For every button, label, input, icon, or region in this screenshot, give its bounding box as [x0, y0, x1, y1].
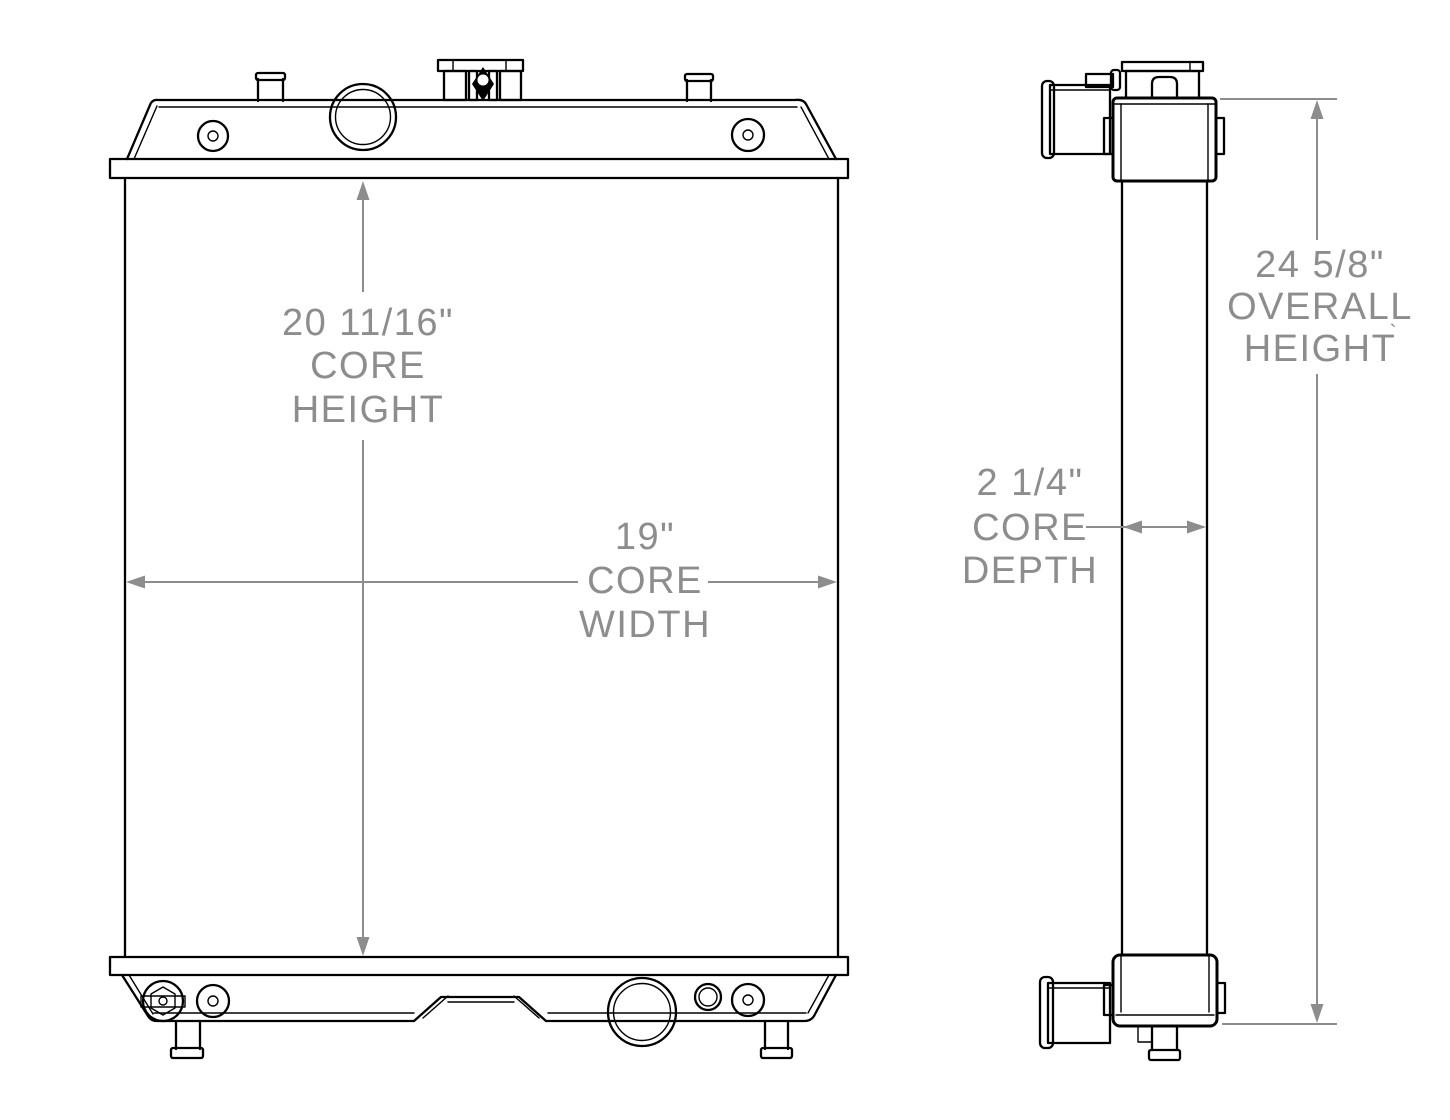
filler-neck	[330, 84, 396, 150]
bottom-tank-side	[1040, 955, 1225, 1060]
radiator-cap-side	[1122, 62, 1203, 98]
bolt-hole-bottom-left	[197, 985, 229, 1017]
overall-height-label-1: OVERALL	[1227, 286, 1413, 328]
core-height-label-2: HEIGHT	[292, 389, 445, 431]
stray-tick-mark: `	[1389, 320, 1396, 345]
mounting-pin-right	[685, 74, 713, 101]
bolt-hole-bottom-right	[732, 984, 764, 1016]
top-tank	[127, 60, 836, 159]
drawing-canvas: 20 11/16" CORE HEIGHT 19" CORE WIDTH 2 1…	[0, 0, 1450, 1120]
drain-petcock	[141, 981, 185, 1021]
core-width-label-2: WIDTH	[579, 604, 711, 646]
mounting-leg-left	[171, 1021, 203, 1058]
bolt-hole-top-right	[732, 119, 764, 151]
core-height-value: 20 11/16"	[282, 302, 454, 344]
radiator-technical-drawing: 20 11/16" CORE HEIGHT 19" CORE WIDTH 2 1…	[0, 0, 1450, 1120]
core-depth-value: 2 1/4"	[976, 462, 1083, 504]
core-side	[1122, 181, 1207, 955]
fitting-ring	[695, 984, 721, 1010]
core-width-dimension: 19" CORE WIDTH	[126, 516, 837, 646]
core-height-dimension: 20 11/16" CORE HEIGHT	[282, 181, 454, 956]
overall-height-label-2: HEIGHT	[1244, 328, 1397, 370]
mounting-pin-left	[256, 73, 285, 101]
core-depth-dimension: 2 1/4" CORE DEPTH	[962, 462, 1206, 592]
overall-height-dimension: 24 5/8" OVERALL HEIGHT `	[1220, 99, 1413, 1024]
inlet-pipe	[1042, 81, 1110, 158]
bolt-hole-top-left	[198, 121, 228, 151]
front-view	[110, 60, 848, 1058]
outlet-pipe-side	[1040, 977, 1110, 1048]
top-tank-side	[1042, 62, 1224, 181]
core-depth-label-2: DEPTH	[962, 550, 1098, 592]
bottom-tank	[122, 975, 836, 1058]
core-height-label-1: CORE	[310, 345, 426, 387]
bottom-header-plate	[110, 957, 848, 975]
mounting-leg-right	[761, 1021, 792, 1058]
overall-height-value: 24 5/8"	[1255, 244, 1385, 286]
core-depth-label-1: CORE	[972, 507, 1088, 549]
overflow-nipple	[1086, 70, 1120, 90]
mounting-leg-side	[1138, 1026, 1180, 1060]
core-front	[125, 178, 838, 957]
radiator-cap-bracket	[438, 60, 523, 101]
top-header-plate	[110, 159, 848, 178]
core-width-label-1: CORE	[587, 560, 703, 602]
outlet-pipe-front	[608, 978, 676, 1046]
core-width-value: 19"	[615, 516, 675, 558]
dimensions: 20 11/16" CORE HEIGHT 19" CORE WIDTH 2 1…	[126, 99, 1413, 1024]
